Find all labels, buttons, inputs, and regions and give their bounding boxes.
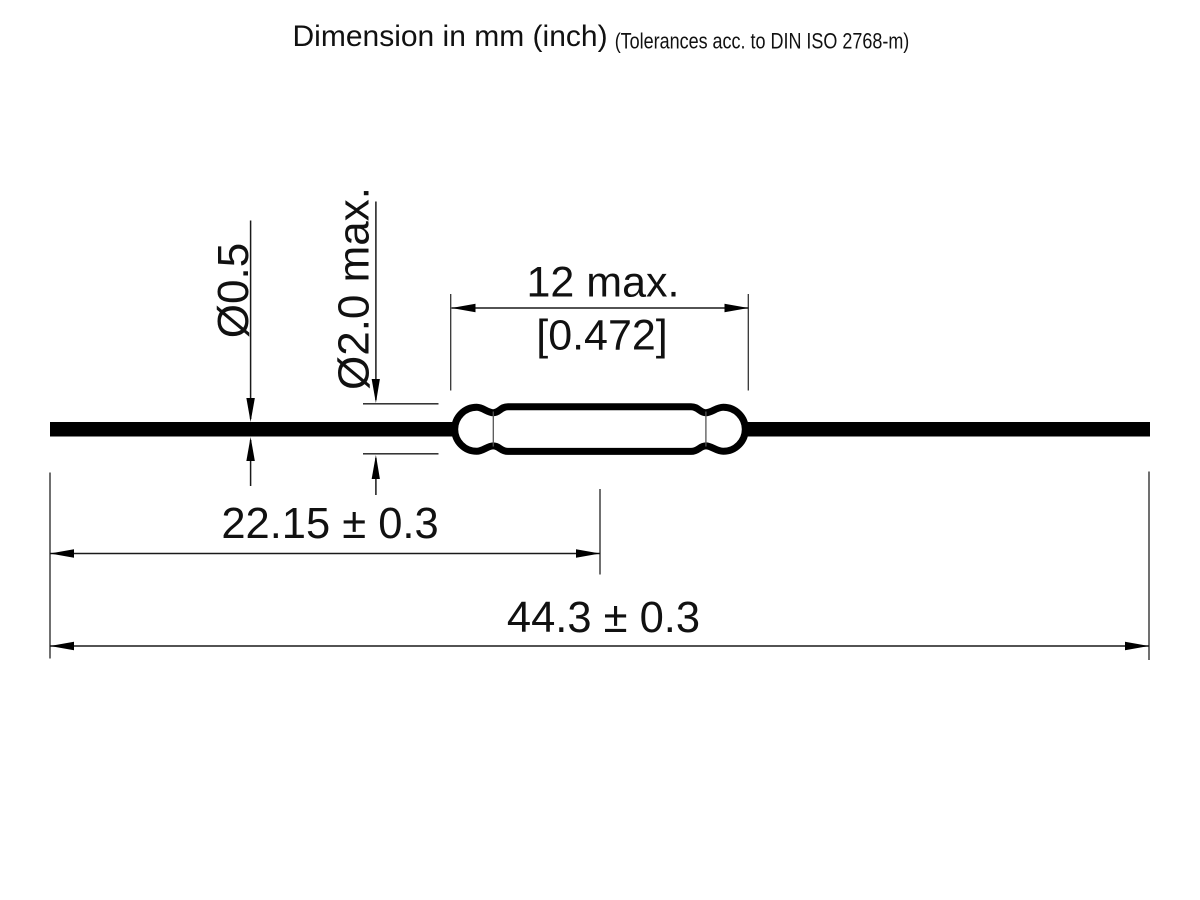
svg-text:(Tolerances acc. to DIN ISO 27: (Tolerances acc. to DIN ISO 2768-m) [615, 28, 910, 53]
svg-text:Dimension in mm (inch): Dimension in mm (inch) [293, 20, 608, 53]
svg-text:Ø0.5: Ø0.5 [209, 243, 258, 338]
svg-text:Ø2.0 max.: Ø2.0 max. [330, 187, 379, 390]
svg-text:[0.472]: [0.472] [536, 312, 668, 360]
svg-text:44.3 ± 0.3: 44.3 ± 0.3 [507, 594, 700, 642]
svg-text:22.15 ± 0.3: 22.15 ± 0.3 [221, 500, 438, 548]
svg-text:12 max.: 12 max. [527, 259, 680, 307]
